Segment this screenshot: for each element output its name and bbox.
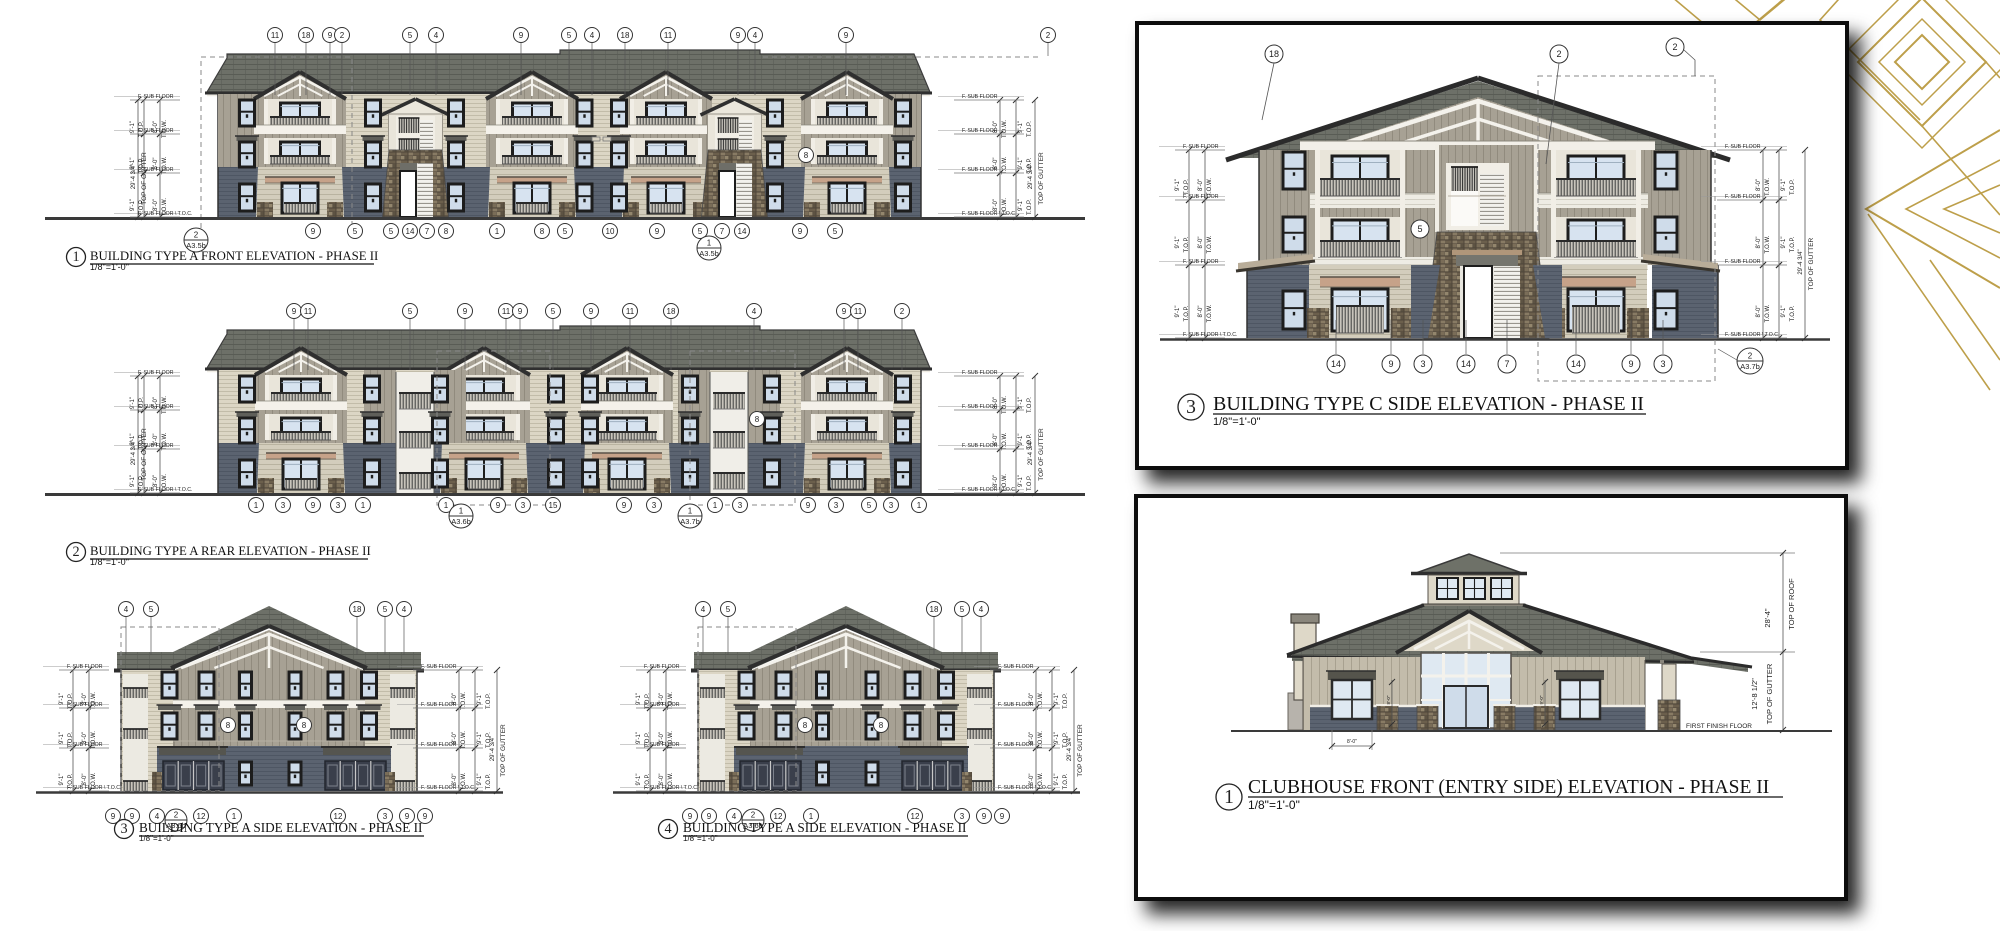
svg-text:7: 7 [1504, 359, 1509, 369]
svg-text:T.O.W.: T.O.W. [1207, 304, 1213, 322]
svg-text:F. SUB FLOOR: F. SUB FLOOR [138, 94, 174, 100]
svg-text:F. SUB FLOOR: F. SUB FLOOR [962, 167, 998, 173]
svg-text:18: 18 [1269, 49, 1279, 59]
svg-text:9: 9 [311, 227, 316, 236]
svg-text:9'-1": 9'-1" [130, 397, 136, 409]
svg-text:3: 3 [834, 501, 839, 510]
svg-text:1/8"=1'-0": 1/8"=1'-0" [1213, 416, 1261, 428]
svg-text:9'-1": 9'-1" [1018, 434, 1024, 446]
svg-text:T.O.W.: T.O.W. [461, 731, 467, 749]
svg-text:5: 5 [567, 31, 572, 40]
svg-text:1: 1 [707, 239, 712, 248]
svg-text:T.O.W.: T.O.W. [1765, 235, 1771, 253]
svg-text:4: 4 [701, 605, 706, 614]
svg-text:F. SUB FLOOR: F. SUB FLOOR [998, 702, 1034, 708]
svg-text:3: 3 [1186, 397, 1196, 418]
svg-text:7: 7 [425, 227, 430, 236]
svg-text:1/8"=1'-0": 1/8"=1'-0" [90, 557, 129, 567]
svg-text:F. SUB FLOOR \ T.O.C.: F. SUB FLOOR \ T.O.C. [421, 785, 475, 791]
svg-text:T.O.W.: T.O.W. [1002, 432, 1008, 450]
svg-text:3: 3 [652, 501, 657, 510]
svg-text:T.O.P.: T.O.P. [1790, 179, 1796, 195]
svg-text:9'-1": 9'-1" [636, 732, 642, 744]
svg-text:F. SUB FLOOR \ T.O.C.: F. SUB FLOOR \ T.O.C. [67, 785, 121, 791]
svg-text:2: 2 [1672, 42, 1677, 52]
svg-text:9'-1": 9'-1" [477, 732, 483, 744]
svg-text:9'-1": 9'-1" [1018, 475, 1024, 487]
svg-text:29'-4 3/4": 29'-4 3/4" [1067, 736, 1073, 761]
svg-text:2: 2 [1556, 49, 1561, 59]
svg-text:8: 8 [879, 721, 884, 730]
svg-text:9: 9 [798, 227, 803, 236]
svg-text:14: 14 [406, 227, 415, 236]
svg-text:4: 4 [664, 821, 671, 837]
svg-text:2: 2 [1748, 352, 1753, 361]
svg-text:5: 5 [383, 605, 388, 614]
svg-text:T.O.W.: T.O.W. [1002, 156, 1008, 174]
svg-text:2: 2 [751, 811, 756, 820]
svg-text:TOP OF GUTTER: TOP OF GUTTER [500, 724, 507, 777]
svg-text:CLUBHOUSE FRONT (ENTRY SIDE) E: CLUBHOUSE FRONT (ENTRY SIDE) ELEVATION -… [1248, 777, 1769, 798]
svg-text:9: 9 [111, 812, 116, 821]
svg-text:5: 5 [408, 307, 413, 316]
svg-text:12'-8 1/2": 12'-8 1/2" [1750, 678, 1759, 710]
svg-text:9'-1": 9'-1" [477, 774, 483, 786]
svg-text:9'-1": 9'-1" [1175, 179, 1181, 191]
svg-text:T.O.W.: T.O.W. [1038, 731, 1044, 749]
svg-text:1: 1 [1224, 787, 1234, 808]
svg-text:3: 3 [336, 501, 341, 510]
svg-text:9'-1": 9'-1" [1054, 732, 1060, 744]
svg-text:9: 9 [1628, 359, 1633, 369]
svg-text:BUILDING TYPE A FRONT ELEVATIO: BUILDING TYPE A FRONT ELEVATION - PHASE … [90, 249, 378, 263]
svg-text:5: 5 [1417, 224, 1422, 234]
svg-text:9'-1": 9'-1" [59, 732, 65, 744]
svg-text:5: 5 [833, 227, 838, 236]
svg-text:BUILDING TYPE A REAR ELEVATION: BUILDING TYPE A REAR ELEVATION - PHASE I… [90, 544, 371, 558]
svg-text:F. SUB FLOOR \ T.O.C.: F. SUB FLOOR \ T.O.C. [644, 785, 698, 791]
svg-text:11: 11 [271, 31, 280, 40]
svg-text:1: 1 [361, 501, 366, 510]
svg-text:3: 3 [1420, 359, 1425, 369]
svg-text:9'-1": 9'-1" [1054, 693, 1060, 705]
svg-text:9: 9 [806, 501, 811, 510]
svg-text:1: 1 [254, 501, 259, 510]
svg-text:T.O.P.: T.O.P. [1027, 475, 1033, 491]
svg-text:14: 14 [1461, 359, 1471, 369]
svg-text:5: 5 [698, 227, 703, 236]
svg-text:4: 4 [753, 31, 758, 40]
svg-text:1: 1 [688, 507, 693, 516]
svg-text:F. SUB FLOOR: F. SUB FLOOR [998, 664, 1034, 670]
svg-text:8: 8 [540, 227, 545, 236]
svg-text:14: 14 [738, 227, 747, 236]
svg-text:29'-4 3/4": 29'-4 3/4" [131, 164, 137, 189]
svg-text:T.O.P.: T.O.P. [1027, 121, 1033, 137]
svg-text:TOP OF GUTTER: TOP OF GUTTER [141, 428, 148, 481]
svg-text:F. SUB FLOOR \ T.O.C.: F. SUB FLOOR \ T.O.C. [138, 487, 192, 493]
svg-text:F. SUB FLOOR: F. SUB FLOOR [138, 128, 174, 134]
svg-text:TOP OF GUTTER: TOP OF GUTTER [1038, 152, 1045, 205]
svg-text:9: 9 [496, 501, 501, 510]
svg-text:T.O.P.: T.O.P. [1790, 236, 1796, 252]
svg-text:T.O.P.: T.O.P. [486, 693, 492, 709]
svg-text:14: 14 [1571, 359, 1581, 369]
svg-text:9'-1": 9'-1" [1175, 306, 1181, 318]
svg-text:1/8"=1'-0": 1/8"=1'-0" [683, 834, 718, 843]
svg-text:29'-4 3/4": 29'-4 3/4" [1028, 440, 1034, 465]
svg-text:3: 3 [889, 501, 894, 510]
svg-text:F. SUB FLOOR: F. SUB FLOOR [962, 443, 998, 449]
svg-text:T.O.P.: T.O.P. [1027, 199, 1033, 215]
svg-text:F. SUB FLOOR \ T.O.C.: F. SUB FLOOR \ T.O.C. [962, 211, 1016, 217]
svg-text:9'-1": 9'-1" [636, 693, 642, 705]
svg-text:4: 4 [752, 307, 757, 316]
svg-text:9: 9 [311, 501, 316, 510]
svg-text:F. SUB FLOOR: F. SUB FLOOR [962, 128, 998, 134]
svg-text:1: 1 [917, 501, 922, 510]
svg-text:F. SUB FLOOR: F. SUB FLOOR [1183, 194, 1219, 200]
svg-text:9'-1": 9'-1" [130, 121, 136, 133]
svg-text:F. SUB FLOOR: F. SUB FLOOR [67, 702, 103, 708]
svg-text:F. SUB FLOOR: F. SUB FLOOR [421, 702, 457, 708]
svg-text:8'-0": 8'-0" [993, 199, 999, 211]
svg-text:9'-1": 9'-1" [1781, 179, 1787, 191]
svg-text:18: 18 [621, 31, 630, 40]
svg-text:BUILDING TYPE C SIDE ELEVATION: BUILDING TYPE C SIDE ELEVATION - PHASE I… [1213, 393, 1644, 415]
svg-text:9: 9 [622, 501, 627, 510]
svg-text:15: 15 [549, 501, 558, 510]
svg-text:8'-0": 8'-0" [1756, 237, 1762, 249]
svg-text:5: 5 [867, 501, 872, 510]
svg-text:TOP OF GUTTER: TOP OF GUTTER [141, 152, 148, 205]
svg-text:18: 18 [667, 307, 676, 316]
svg-text:9: 9 [423, 812, 428, 821]
svg-text:T.O.W.: T.O.W. [1765, 304, 1771, 322]
svg-text:11: 11 [854, 307, 863, 316]
svg-text:8'-0": 8'-0" [1029, 774, 1035, 786]
svg-text:8'-0": 8'-0" [452, 774, 458, 786]
svg-text:9: 9 [328, 31, 333, 40]
svg-text:T.O.P.: T.O.P. [1184, 179, 1190, 195]
svg-text:4: 4 [434, 31, 439, 40]
svg-text:F. SUB FLOOR: F. SUB FLOOR [962, 94, 998, 100]
svg-text:4: 4 [590, 31, 595, 40]
svg-text:F. SUB FLOOR: F. SUB FLOOR [962, 370, 998, 376]
svg-text:T.O.P.: T.O.P. [1184, 305, 1190, 321]
svg-text:8: 8 [755, 415, 760, 424]
svg-text:29'-4 3/4": 29'-4 3/4" [490, 736, 496, 761]
svg-text:4: 4 [124, 605, 129, 614]
svg-text:F. SUB FLOOR: F. SUB FLOOR [421, 742, 457, 748]
svg-text:9: 9 [982, 812, 987, 821]
svg-text:9: 9 [1388, 359, 1393, 369]
svg-text:9'-1": 9'-1" [130, 475, 136, 487]
svg-text:29'-4 3/4": 29'-4 3/4" [1028, 164, 1034, 189]
svg-text:9'-1": 9'-1" [636, 774, 642, 786]
svg-text:4: 4 [979, 605, 984, 614]
svg-text:T.O.W.: T.O.W. [1002, 120, 1008, 138]
svg-text:8: 8 [226, 721, 231, 730]
svg-text:8'-0": 8'-0" [659, 774, 665, 786]
svg-text:2: 2 [340, 31, 345, 40]
svg-text:18: 18 [302, 31, 311, 40]
svg-text:2: 2 [900, 307, 905, 316]
svg-text:8'-0": 8'-0" [153, 475, 159, 487]
svg-text:5: 5 [353, 227, 358, 236]
svg-text:4: 4 [402, 605, 407, 614]
svg-text:A3.7b: A3.7b [680, 517, 700, 526]
svg-text:F. SUB FLOOR: F. SUB FLOOR [644, 664, 680, 670]
svg-text:F. SUB FLOOR \ T.O.C.: F. SUB FLOOR \ T.O.C. [138, 211, 192, 217]
svg-text:11: 11 [304, 307, 313, 316]
svg-text:11: 11 [626, 307, 635, 316]
svg-text:29'-4 3/4": 29'-4 3/4" [131, 440, 137, 465]
svg-text:1: 1 [444, 501, 449, 510]
svg-text:F. SUB FLOOR: F. SUB FLOOR [1183, 259, 1219, 265]
svg-text:TOP OF ROOF: TOP OF ROOF [1787, 578, 1796, 630]
svg-text:F. SUB FLOOR: F. SUB FLOOR [138, 404, 174, 410]
svg-text:9'-1": 9'-1" [1781, 237, 1787, 249]
svg-text:FIRST FINISH FLOOR: FIRST FINISH FLOOR [1686, 723, 1752, 730]
svg-text:2: 2 [72, 544, 79, 560]
svg-text:F. SUB FLOOR: F. SUB FLOOR [962, 404, 998, 410]
svg-text:18: 18 [353, 605, 362, 614]
svg-text:9: 9 [519, 31, 524, 40]
svg-text:TOP OF GUTTER: TOP OF GUTTER [1038, 428, 1045, 481]
svg-text:3: 3 [281, 501, 286, 510]
svg-text:7: 7 [720, 227, 725, 236]
svg-text:8'-0": 8'-0" [993, 475, 999, 487]
svg-text:8'-0": 8'-0" [1347, 739, 1357, 745]
svg-text:8: 8 [302, 721, 307, 730]
svg-text:5: 5 [551, 307, 556, 316]
svg-text:10: 10 [606, 227, 615, 236]
svg-text:9'-1": 9'-1" [59, 774, 65, 786]
svg-text:T.O.W.: T.O.W. [1765, 178, 1771, 196]
svg-text:29'-4 3/4": 29'-4 3/4" [1798, 249, 1804, 274]
svg-text:1/8"=1'-0": 1/8"=1'-0" [1248, 798, 1300, 812]
svg-text:F. SUB FLOOR: F. SUB FLOOR [1725, 194, 1761, 200]
svg-text:F. SUB FLOOR: F. SUB FLOOR [644, 702, 680, 708]
svg-text:F. SUB FLOOR: F. SUB FLOOR [138, 370, 174, 376]
svg-text:T.O.P.: T.O.P. [486, 773, 492, 789]
svg-text:9: 9 [292, 307, 297, 316]
svg-text:8'-0": 8'-0" [1756, 179, 1762, 191]
svg-text:8'-0": 8'-0" [1756, 306, 1762, 318]
svg-text:3: 3 [120, 821, 127, 837]
svg-text:F. SUB FLOOR: F. SUB FLOOR [1725, 144, 1761, 150]
svg-text:8: 8 [444, 227, 449, 236]
svg-text:1/8"=1'-0": 1/8"=1'-0" [139, 834, 174, 843]
svg-text:5: 5 [389, 227, 394, 236]
svg-text:3: 3 [1660, 359, 1665, 369]
svg-text:TOP OF GUTTER: TOP OF GUTTER [1077, 724, 1084, 777]
svg-text:8'-0": 8'-0" [153, 199, 159, 211]
svg-text:F. SUB FLOOR: F. SUB FLOOR [1725, 259, 1761, 265]
svg-text:11: 11 [664, 31, 673, 40]
svg-text:F. SUB FLOOR \ T.O.C.: F. SUB FLOOR \ T.O.C. [998, 785, 1052, 791]
svg-text:8'-0": 8'-0" [1198, 237, 1204, 249]
svg-text:9'-1": 9'-1" [130, 199, 136, 211]
svg-text:1: 1 [713, 501, 718, 510]
svg-text:9'-1": 9'-1" [1018, 199, 1024, 211]
svg-text:8: 8 [803, 721, 808, 730]
svg-text:T.O.W.: T.O.W. [1207, 235, 1213, 253]
svg-text:3: 3 [521, 501, 526, 510]
svg-text:5: 5 [726, 605, 731, 614]
svg-text:1: 1 [459, 507, 464, 516]
svg-text:5: 5 [408, 31, 413, 40]
svg-text:8: 8 [804, 151, 809, 160]
svg-text:F. SUB FLOOR: F. SUB FLOOR [421, 664, 457, 670]
svg-text:T.O.P.: T.O.P. [1063, 693, 1069, 709]
svg-text:8'-0": 8'-0" [1198, 306, 1204, 318]
svg-text:9'-1": 9'-1" [1018, 158, 1024, 170]
svg-text:8'-0": 8'-0" [1198, 179, 1204, 191]
svg-text:TOP OF GUTTER: TOP OF GUTTER [1808, 237, 1815, 290]
svg-text:F. SUB FLOOR: F. SUB FLOOR [644, 742, 680, 748]
svg-text:F. SUB FLOOR \ T.O.C.: F. SUB FLOOR \ T.O.C. [1725, 332, 1779, 338]
svg-text:9: 9 [518, 307, 523, 316]
svg-text:9'-1": 9'-1" [1781, 306, 1787, 318]
svg-text:T.O.W.: T.O.W. [1038, 692, 1044, 710]
svg-text:F. SUB FLOOR: F. SUB FLOOR [998, 742, 1034, 748]
svg-text:9'-1": 9'-1" [1175, 237, 1181, 249]
svg-text:14: 14 [1331, 359, 1341, 369]
svg-text:T.O.W.: T.O.W. [1002, 396, 1008, 414]
svg-text:T.O.W.: T.O.W. [461, 692, 467, 710]
svg-text:2: 2 [174, 811, 179, 820]
svg-text:F. SUB FLOOR: F. SUB FLOOR [1183, 144, 1219, 150]
svg-text:A3.5b: A3.5b [699, 249, 719, 258]
svg-text:9: 9 [844, 31, 849, 40]
svg-text:3: 3 [738, 501, 743, 510]
svg-text:F. SUB FLOOR: F. SUB FLOOR [67, 742, 103, 748]
svg-text:F. SUB FLOOR \ T.O.C.: F. SUB FLOOR \ T.O.C. [962, 487, 1016, 493]
svg-text:18: 18 [930, 605, 939, 614]
svg-text:5: 5 [960, 605, 965, 614]
svg-text:1: 1 [495, 227, 500, 236]
svg-text:1/8"=1'-0": 1/8"=1'-0" [90, 262, 129, 272]
svg-text:F. SUB FLOOR: F. SUB FLOOR [67, 664, 103, 670]
svg-text:2: 2 [194, 231, 199, 240]
svg-text:A3.6b: A3.6b [451, 517, 471, 526]
svg-text:8'-0": 8'-0" [82, 774, 88, 786]
svg-text:BUILDING TYPE A SIDE ELEVATION: BUILDING TYPE A SIDE ELEVATION - PHASE I… [683, 820, 966, 835]
svg-text:5: 5 [563, 227, 568, 236]
svg-text:9'-0": 9'-0" [1539, 695, 1544, 704]
svg-text:8'-0": 8'-0" [1386, 695, 1391, 704]
svg-text:BUILDING TYPE A SIDE ELEVATION: BUILDING TYPE A SIDE ELEVATION - PHASE I… [139, 820, 422, 835]
svg-text:9: 9 [842, 307, 847, 316]
svg-text:9: 9 [463, 307, 468, 316]
svg-text:9: 9 [130, 812, 135, 821]
svg-text:T.O.P.: T.O.P. [1027, 397, 1033, 413]
svg-text:1: 1 [72, 249, 79, 265]
svg-text:2: 2 [1046, 31, 1051, 40]
svg-text:9: 9 [589, 307, 594, 316]
svg-text:9: 9 [1000, 812, 1005, 821]
svg-text:28'-4": 28'-4" [1763, 608, 1772, 627]
svg-text:9: 9 [655, 227, 660, 236]
svg-text:F. SUB FLOOR \ T.O.C.: F. SUB FLOOR \ T.O.C. [1183, 332, 1237, 338]
svg-text:T.O.P.: T.O.P. [1184, 236, 1190, 252]
svg-text:TOP OF GUTTER: TOP OF GUTTER [1765, 663, 1774, 724]
svg-text:A3.7b: A3.7b [1740, 362, 1760, 371]
svg-text:9'-1": 9'-1" [59, 693, 65, 705]
svg-text:9'-1": 9'-1" [1054, 774, 1060, 786]
svg-text:9: 9 [736, 31, 741, 40]
svg-text:11: 11 [502, 307, 511, 316]
svg-text:5: 5 [149, 605, 154, 614]
svg-text:9'-1": 9'-1" [477, 693, 483, 705]
svg-text:T.O.P.: T.O.P. [1790, 305, 1796, 321]
svg-text:T.O.P.: T.O.P. [1063, 773, 1069, 789]
